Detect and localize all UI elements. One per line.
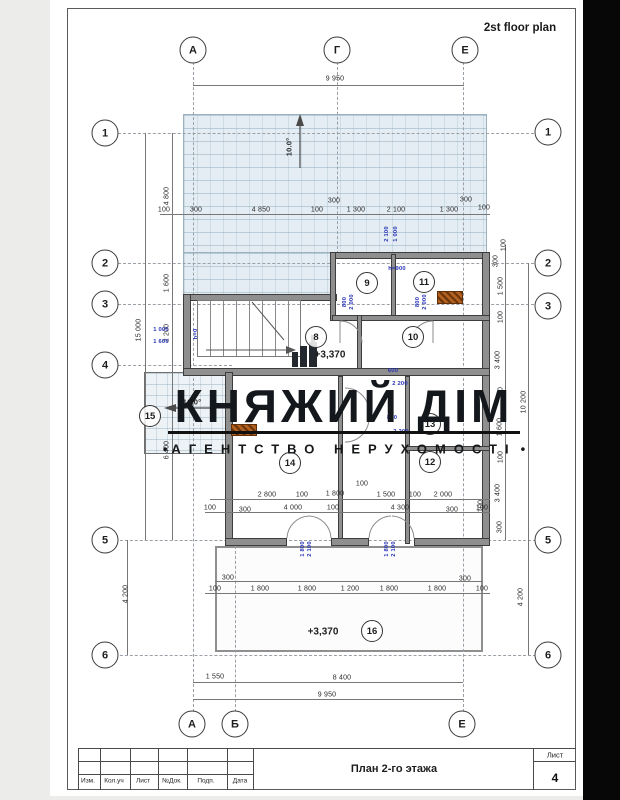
slope-arrows — [174, 124, 300, 408]
title-block-line — [78, 748, 79, 790]
dimension-text: 10 200 — [521, 391, 528, 414]
title-block-column-label: Дата — [233, 778, 247, 785]
axis-circle: 4 — [92, 352, 119, 379]
dimension-text: 100 — [356, 481, 368, 488]
dimension-text: 2 000 — [349, 294, 355, 310]
dimension-text: 1 800 — [251, 586, 270, 593]
title-block-line — [533, 761, 576, 762]
dimension-text: 1 800 — [300, 541, 306, 557]
axis-circle: 5 — [535, 527, 562, 554]
dimension-text: 100 — [311, 207, 323, 214]
watermark-subtitle: •АГЕНТСТВО НЕРУХОМОСТІ• — [159, 442, 529, 457]
dimension-text: 300 — [460, 197, 472, 204]
watermark-subtitle-text: АГЕНТСТВО НЕРУХОМОСТІ — [171, 442, 516, 457]
title-block-column-label: Подп. — [197, 778, 214, 785]
title-block-column-label: Изм. — [81, 778, 95, 785]
dimension-text: 1 550 — [206, 674, 225, 681]
elevation-mark: +3,370 — [315, 350, 346, 361]
dimension-text: 800 — [342, 297, 348, 307]
dimension-text: 1 000 — [393, 226, 399, 242]
dimension-text: 300 — [239, 507, 251, 514]
dimension-text: 2 100 — [307, 541, 313, 557]
room-number: 11 — [413, 271, 435, 293]
title-block-line — [253, 748, 254, 790]
dimension-text: 15 000 — [136, 319, 143, 342]
dimension-text: 100 — [478, 205, 490, 212]
dimension-text: 1 300 — [440, 207, 459, 214]
stair-marks — [206, 302, 286, 350]
title-block-column-label: Кол.уч — [104, 778, 124, 785]
dimension-text: h=900 — [388, 266, 406, 272]
title-block-column-label: №Док. — [162, 778, 182, 785]
dimension-text: 300 — [497, 521, 504, 533]
axis-circle: А — [179, 711, 206, 738]
dimension-text: 1 800 — [380, 586, 399, 593]
sheet-number: 4 — [552, 771, 559, 785]
dimension-text: 100 — [501, 239, 508, 251]
dimension-text: 4 850 — [252, 207, 271, 214]
dimension-text: 300 — [493, 255, 500, 267]
axis-circle: 2 — [92, 250, 119, 277]
room-number: 16 — [361, 620, 383, 642]
watermark-underline — [168, 431, 520, 434]
sheet-label: Лист — [547, 751, 563, 760]
dimension-text: 8 400 — [333, 675, 352, 682]
axis-circle: Б — [222, 711, 249, 738]
dimension-text: 4 000 — [284, 505, 303, 512]
dimension-text: 2 100 — [391, 541, 397, 557]
axis-circle: Е — [449, 711, 476, 738]
title-block-line — [227, 748, 228, 790]
axis-circle: А — [180, 37, 207, 64]
room-number: 15 — [139, 405, 161, 427]
elevation-mark: +3,370 — [308, 627, 339, 638]
dimension-text: 1 600 — [164, 274, 171, 293]
dimension-text: 1 600 — [153, 339, 169, 345]
dimension-text: 100 — [498, 311, 505, 323]
dimension-text: 2 100 — [387, 207, 406, 214]
slope-label: 10.0° — [285, 138, 294, 157]
dimension-text: 300 — [459, 576, 471, 583]
dimension-text: 9 950 — [326, 76, 345, 83]
title-block-column-label: Лист — [136, 778, 150, 785]
watermark-bullet-left: • — [163, 442, 168, 457]
dimension-text: 1 800 — [298, 586, 317, 593]
axis-circle: 5 — [92, 527, 119, 554]
title-block-line — [533, 748, 534, 790]
title-block-line — [130, 748, 131, 790]
dimension-text: 600 — [388, 368, 398, 374]
dimension-text: 1 800 — [384, 541, 390, 557]
dimension-text: 1 500 — [498, 277, 505, 296]
axis-circle: 2 — [535, 250, 562, 277]
dimension-text: 100 — [158, 207, 170, 214]
dimension-text: 1 000 — [153, 327, 169, 333]
dimension-text: 300 — [446, 507, 458, 514]
dimension-text: 2 000 — [434, 492, 453, 499]
title-block-line — [187, 748, 188, 790]
dimension-text: h=0 — [193, 329, 199, 340]
title-block-line — [100, 748, 101, 790]
dimension-text: 3 400 — [495, 351, 502, 370]
dimension-text: 100 — [476, 586, 488, 593]
dimension-text: 1 800 — [326, 491, 345, 498]
floor-plan-sheet: 2st floor plan АГЕАБЕ1234561235689101112… — [0, 0, 620, 800]
axis-circle: 1 — [92, 120, 119, 147]
dimension-text: 4 200 — [518, 588, 525, 607]
dimension-text: 100 — [209, 586, 221, 593]
watermark-bullet-right: • — [521, 442, 526, 457]
dimension-text: 1 500 — [377, 492, 396, 499]
watermark-title: КНЯЖИЙ ДІМ — [175, 379, 514, 433]
axis-circle: Е — [452, 37, 479, 64]
dimension-text: 4 200 — [123, 585, 130, 604]
axis-circle: 1 — [535, 119, 562, 146]
title-block-line — [158, 748, 159, 790]
axis-circle: 6 — [535, 642, 562, 669]
dimension-text: 100 — [327, 505, 339, 512]
dimension-text: 100 — [409, 492, 421, 499]
dimension-text: 100 — [204, 505, 216, 512]
dimension-text: 800 — [415, 297, 421, 307]
dimension-text: 2 800 — [258, 492, 277, 499]
dimension-text: 2 000 — [422, 294, 428, 310]
dimension-text: 1 300 — [347, 207, 366, 214]
dimension-text: 100 — [296, 492, 308, 499]
dimension-text: 1 200 — [341, 586, 360, 593]
axis-circle: 6 — [92, 642, 119, 669]
dimension-text: 9 950 — [318, 692, 337, 699]
axis-circle: 3 — [535, 293, 562, 320]
title-block-line — [78, 748, 576, 749]
dimension-text: 300 — [222, 575, 234, 582]
dimension-text: 1 800 — [428, 586, 447, 593]
slope-arrowhead-up — [296, 114, 304, 126]
dimension-text: 2 100 — [384, 226, 390, 242]
drawing-name: План 2-го этажа — [351, 763, 437, 775]
dimension-text: 3 400 — [495, 484, 502, 503]
room-number: 9 — [356, 272, 378, 294]
room-number: 8 — [305, 326, 327, 348]
axis-circle: 3 — [92, 291, 119, 318]
dimension-text: 100 — [476, 505, 488, 512]
dimension-text: 4 800 — [164, 187, 171, 206]
dimension-text: 300 — [328, 198, 340, 205]
screenshot-black-strip — [583, 0, 620, 800]
plan-title: 2st floor plan — [484, 22, 556, 34]
dimension-text: 4 300 — [391, 505, 410, 512]
dimension-text: 300 — [190, 207, 202, 214]
axis-circle: Г — [324, 37, 351, 64]
room-number: 10 — [402, 326, 424, 348]
